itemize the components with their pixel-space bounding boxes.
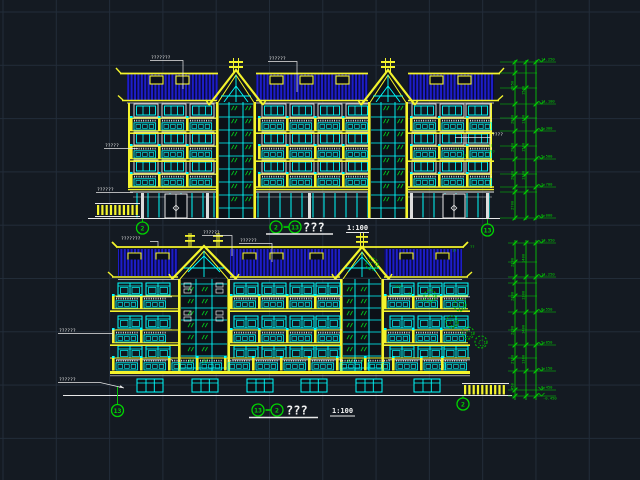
leader-arrowhead-icon <box>119 385 124 388</box>
svg-text:?????: ????? <box>105 143 119 149</box>
window-row[interactable] <box>132 104 492 175</box>
svg-text:????: ???? <box>492 132 503 138</box>
svg-text:5.500: 5.500 <box>541 154 553 159</box>
svg-text:2: 2 <box>461 401 465 409</box>
annotation-label[interactable]: ?????? <box>58 377 124 388</box>
dimension-chain[interactable]: 14.250 11.100 8.300 5.500 2.700 0.000 28… <box>500 57 556 221</box>
svg-text:13: 13 <box>254 407 262 415</box>
svg-text:???: ??? <box>488 149 495 154</box>
svg-text:??: ?? <box>470 244 475 249</box>
svg-text:-0.450: -0.450 <box>543 396 557 401</box>
svg-text:1:100: 1:100 <box>347 224 368 232</box>
storefront-door[interactable] <box>443 194 465 218</box>
view-title[interactable]: 13 2 ??? 1:100 <box>249 404 355 418</box>
svg-text:??: ?? <box>420 298 425 303</box>
svg-text:???????: ??????? <box>151 55 171 61</box>
svg-text:2700: 2700 <box>510 291 515 301</box>
balcony-row[interactable] <box>128 116 494 187</box>
svg-text:8.300: 8.300 <box>541 126 553 131</box>
stair-tower-left[interactable] <box>169 233 239 371</box>
svg-text:2700: 2700 <box>510 325 515 335</box>
svg-text:5.850: 5.850 <box>541 340 553 345</box>
cad-canvas[interactable]: 2 13 ??????? ??????? ?????? ????? ??????… <box>0 0 640 480</box>
svg-text:???: ??? <box>395 284 402 289</box>
wall-edge <box>128 103 130 188</box>
svg-text:1300: 1300 <box>521 170 526 180</box>
svg-text:2700: 2700 <box>510 257 515 267</box>
axis-bubble-left[interactable]: 2 <box>137 219 149 234</box>
axis-bubble-right[interactable]: 13 <box>482 219 494 236</box>
svg-text:??????: ?????? <box>59 328 76 334</box>
svg-text:3.150: 3.150 <box>541 366 553 371</box>
svg-text:2800: 2800 <box>510 142 515 152</box>
svg-text:???: ??? <box>303 221 325 235</box>
svg-text:??????: ?????? <box>240 238 257 244</box>
entry-fence[interactable] <box>95 204 140 217</box>
dimension-chain[interactable]: 13.950 11.250 8.550 5.850 3.150 0.450 -0… <box>508 238 557 401</box>
svg-text:???????: ??????? <box>121 236 141 242</box>
svg-text:2850: 2850 <box>510 80 515 90</box>
svg-text:??????: ?????? <box>203 230 220 236</box>
svg-text:2: 2 <box>141 225 145 233</box>
svg-text:450: 450 <box>510 382 515 390</box>
svg-text:13.950: 13.950 <box>541 238 555 243</box>
plinth[interactable] <box>110 371 470 392</box>
roof[interactable] <box>116 68 504 103</box>
svg-text:0.450: 0.450 <box>541 385 553 390</box>
axis-bubble-right[interactable]: 2 <box>457 396 469 410</box>
balcony-row[interactable] <box>110 294 470 371</box>
svg-text:1300: 1300 <box>521 114 526 124</box>
svg-text:??: ?? <box>408 291 413 296</box>
svg-text:???: ??? <box>286 404 308 418</box>
svg-text:1:100: 1:100 <box>332 407 353 415</box>
svg-text:2700: 2700 <box>510 354 515 364</box>
svg-text:11.250: 11.250 <box>541 272 555 277</box>
svg-text:8.550: 8.550 <box>541 307 553 312</box>
axis-caption: ??????? <box>121 236 158 247</box>
svg-text:??????: ?????? <box>59 377 76 383</box>
svg-text:1400: 1400 <box>521 324 526 334</box>
view-title[interactable]: 2 13 ??? 1:100 <box>266 221 369 235</box>
svg-text:13: 13 <box>484 227 492 235</box>
svg-text:??: ?? <box>455 147 460 152</box>
svg-text:2: 2 <box>275 407 279 415</box>
svg-text:13: 13 <box>291 224 299 232</box>
side-fence[interactable] <box>462 384 509 395</box>
bottom-elevation[interactable]: 13 2 ?????? ?????? ?????? ?????? ?? ?? ?… <box>58 230 557 418</box>
svg-text:1500: 1500 <box>521 85 526 95</box>
roof[interactable] <box>108 242 472 280</box>
svg-text:??????: ?????? <box>97 187 114 193</box>
stair-tower-right[interactable] <box>332 233 392 371</box>
svg-text:1500: 1500 <box>521 142 526 152</box>
svg-text:2800: 2800 <box>510 114 515 124</box>
storefront[interactable] <box>128 187 494 218</box>
annotation-label[interactable]: ?????? <box>96 187 133 193</box>
svg-text:0.000: 0.000 <box>541 213 553 218</box>
svg-text:2.700: 2.700 <box>541 182 553 187</box>
svg-text:??: ?? <box>452 248 457 253</box>
svg-text:14.250: 14.250 <box>541 57 555 62</box>
svg-text:1300: 1300 <box>521 354 526 364</box>
cad-viewport[interactable]: 2 13 ??????? ??????? ?????? ????? ??????… <box>0 0 640 480</box>
svg-text:2: 2 <box>274 224 278 232</box>
svg-text:13: 13 <box>114 407 122 415</box>
storefront-door[interactable] <box>165 194 187 218</box>
window-row[interactable] <box>116 283 470 360</box>
svg-text:2800: 2800 <box>510 170 515 180</box>
svg-text:2700: 2700 <box>510 200 515 210</box>
svg-text:11.100: 11.100 <box>541 99 555 104</box>
svg-text:??: ?? <box>488 143 493 148</box>
top-elevation[interactable]: 2 13 ??????? ??????? ?????? ????? ??????… <box>88 55 556 247</box>
svg-text:1300: 1300 <box>521 290 526 300</box>
annotation-label[interactable]: ?????? <box>58 328 113 340</box>
svg-text:??: ?? <box>462 153 467 158</box>
svg-text:1400: 1400 <box>521 253 526 263</box>
axis-bubble-left[interactable]: 13 <box>112 386 124 417</box>
svg-text:??????: ?????? <box>269 56 286 62</box>
